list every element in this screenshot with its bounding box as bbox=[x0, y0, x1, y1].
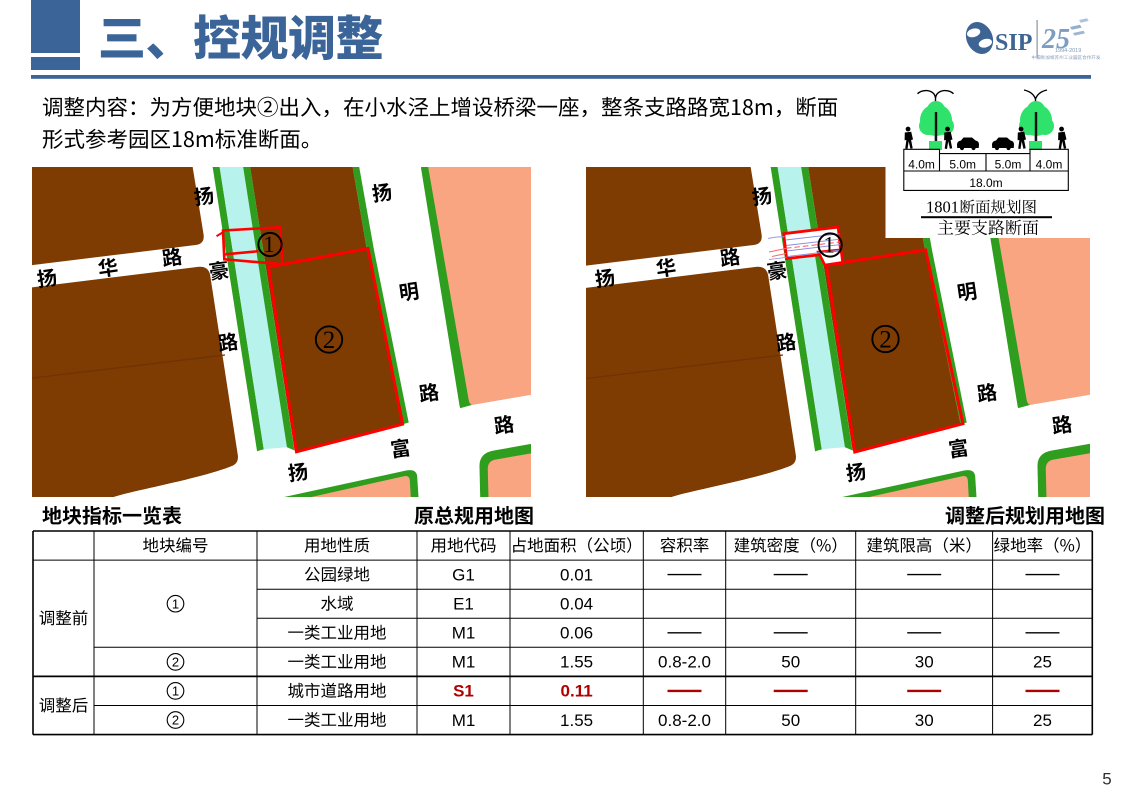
svg-text:0.11: 0.11 bbox=[561, 682, 593, 701]
svg-text:1: 1 bbox=[172, 684, 179, 699]
svg-text:M1: M1 bbox=[452, 624, 476, 643]
svg-text:E1: E1 bbox=[453, 595, 474, 614]
svg-text:25: 25 bbox=[1033, 653, 1052, 672]
svg-text:2: 2 bbox=[323, 327, 336, 354]
svg-text:50: 50 bbox=[781, 653, 800, 672]
svg-text:G1: G1 bbox=[452, 565, 475, 584]
svg-text:1.55: 1.55 bbox=[560, 653, 593, 672]
svg-text:2: 2 bbox=[879, 326, 892, 353]
svg-text:0.04: 0.04 bbox=[560, 595, 593, 614]
svg-text:4.0m: 4.0m bbox=[908, 158, 935, 172]
svg-text:5: 5 bbox=[1102, 770, 1111, 789]
svg-text:SIP: SIP bbox=[995, 30, 1032, 56]
svg-text:M1: M1 bbox=[452, 653, 476, 672]
svg-text:1: 1 bbox=[823, 233, 835, 258]
svg-text:50: 50 bbox=[781, 711, 800, 730]
svg-text:2: 2 bbox=[172, 713, 179, 728]
svg-text:0.8-2.0: 0.8-2.0 bbox=[658, 653, 711, 672]
svg-text:1: 1 bbox=[172, 596, 179, 611]
svg-text:30: 30 bbox=[915, 653, 934, 672]
svg-text:2: 2 bbox=[172, 655, 179, 670]
svg-text:18.0m: 18.0m bbox=[969, 176, 1002, 190]
svg-text:4.0m: 4.0m bbox=[1036, 158, 1063, 172]
svg-text:5.0m: 5.0m bbox=[949, 158, 976, 172]
svg-text:0.01: 0.01 bbox=[560, 565, 593, 584]
svg-text:1994-2019: 1994-2019 bbox=[1055, 48, 1081, 54]
svg-text:25: 25 bbox=[1033, 711, 1052, 730]
svg-text:S1: S1 bbox=[453, 682, 474, 701]
svg-text:1801: 1801 bbox=[926, 198, 959, 217]
svg-text:0.8-2.0: 0.8-2.0 bbox=[658, 711, 711, 730]
svg-text:1.55: 1.55 bbox=[560, 711, 593, 730]
svg-text:1: 1 bbox=[263, 232, 275, 257]
svg-text:M1: M1 bbox=[452, 711, 476, 730]
svg-text:0.06: 0.06 bbox=[560, 624, 593, 643]
svg-text:5.0m: 5.0m bbox=[995, 158, 1022, 172]
svg-text:30: 30 bbox=[915, 711, 934, 730]
